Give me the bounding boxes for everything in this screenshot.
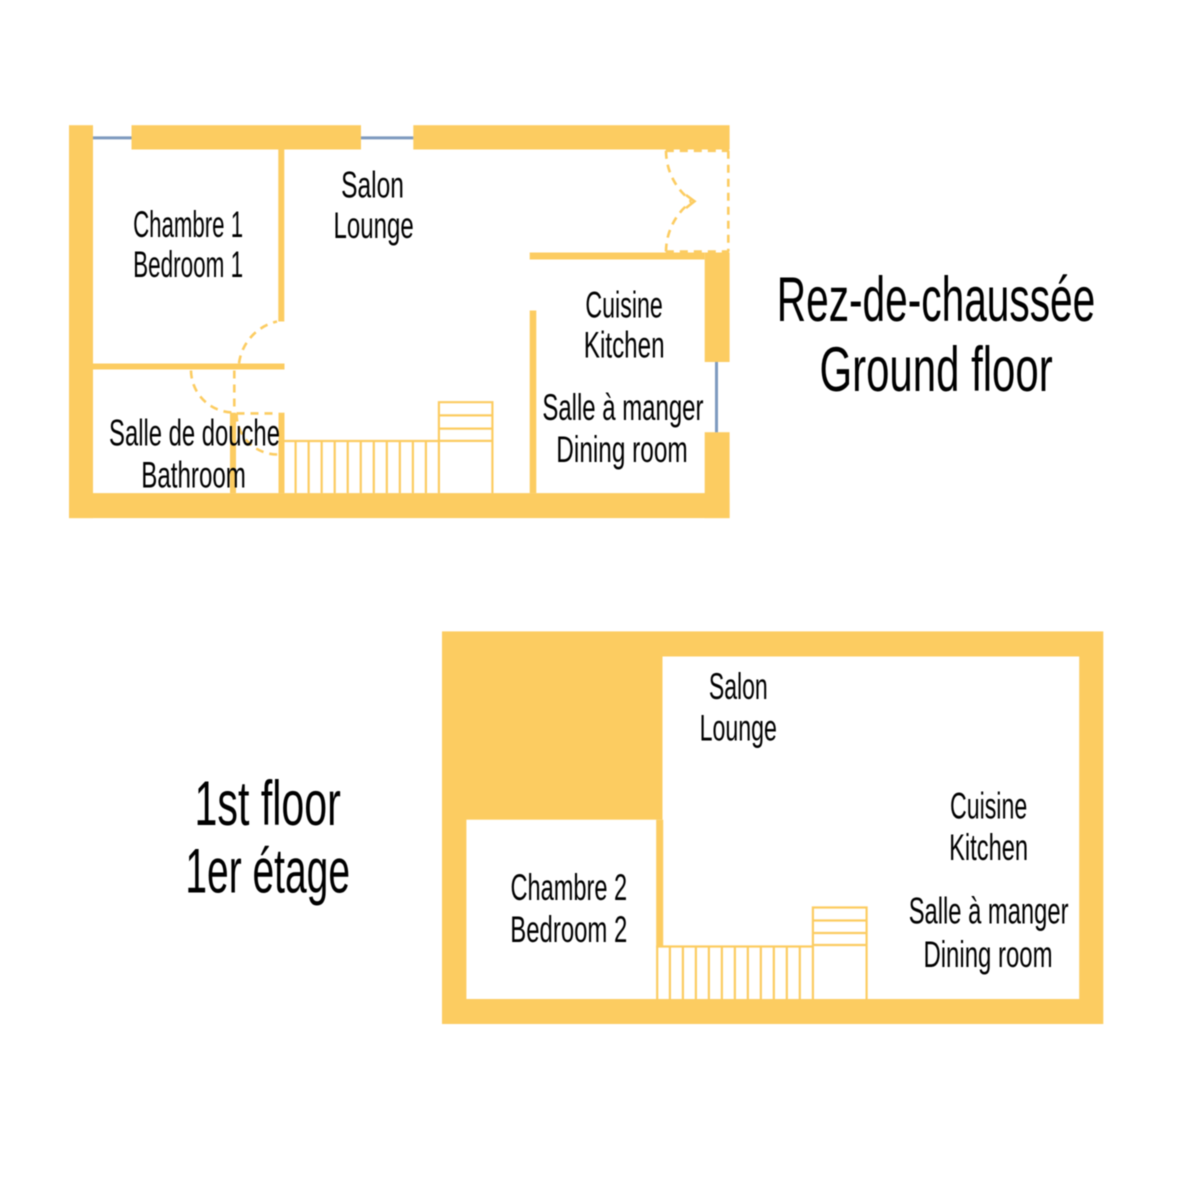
svg-text:Kitchen: Kitchen: [949, 827, 1028, 868]
svg-text:Salon: Salon: [341, 165, 404, 206]
svg-text:Cuisine: Cuisine: [585, 284, 662, 325]
svg-text:Ground floor: Ground floor: [820, 335, 1053, 405]
svg-text:1st floor: 1st floor: [195, 769, 341, 839]
svg-text:Salle à manger: Salle à manger: [542, 387, 703, 428]
svg-text:Lounge: Lounge: [334, 205, 414, 246]
svg-text:Dining room: Dining room: [923, 934, 1052, 975]
svg-text:Salle de douche: Salle de douche: [109, 412, 280, 453]
svg-text:Lounge: Lounge: [700, 707, 777, 748]
svg-text:Chambre 1: Chambre 1: [133, 204, 243, 245]
svg-text:Salle à manger: Salle à manger: [909, 890, 1069, 931]
svg-text:Dining room: Dining room: [556, 429, 687, 470]
svg-text:Salon: Salon: [709, 666, 768, 707]
svg-text:Cuisine: Cuisine: [950, 786, 1027, 827]
svg-text:Chambre 2: Chambre 2: [510, 867, 627, 908]
svg-text:Rez-de-chaussée: Rez-de-chaussée: [777, 265, 1096, 335]
svg-text:Bathroom: Bathroom: [141, 455, 246, 496]
svg-text:Bedroom 2: Bedroom 2: [510, 909, 627, 950]
svg-text:1er étage: 1er étage: [185, 837, 350, 907]
svg-text:Bedroom 1: Bedroom 1: [133, 244, 243, 285]
svg-text:Kitchen: Kitchen: [584, 325, 665, 366]
